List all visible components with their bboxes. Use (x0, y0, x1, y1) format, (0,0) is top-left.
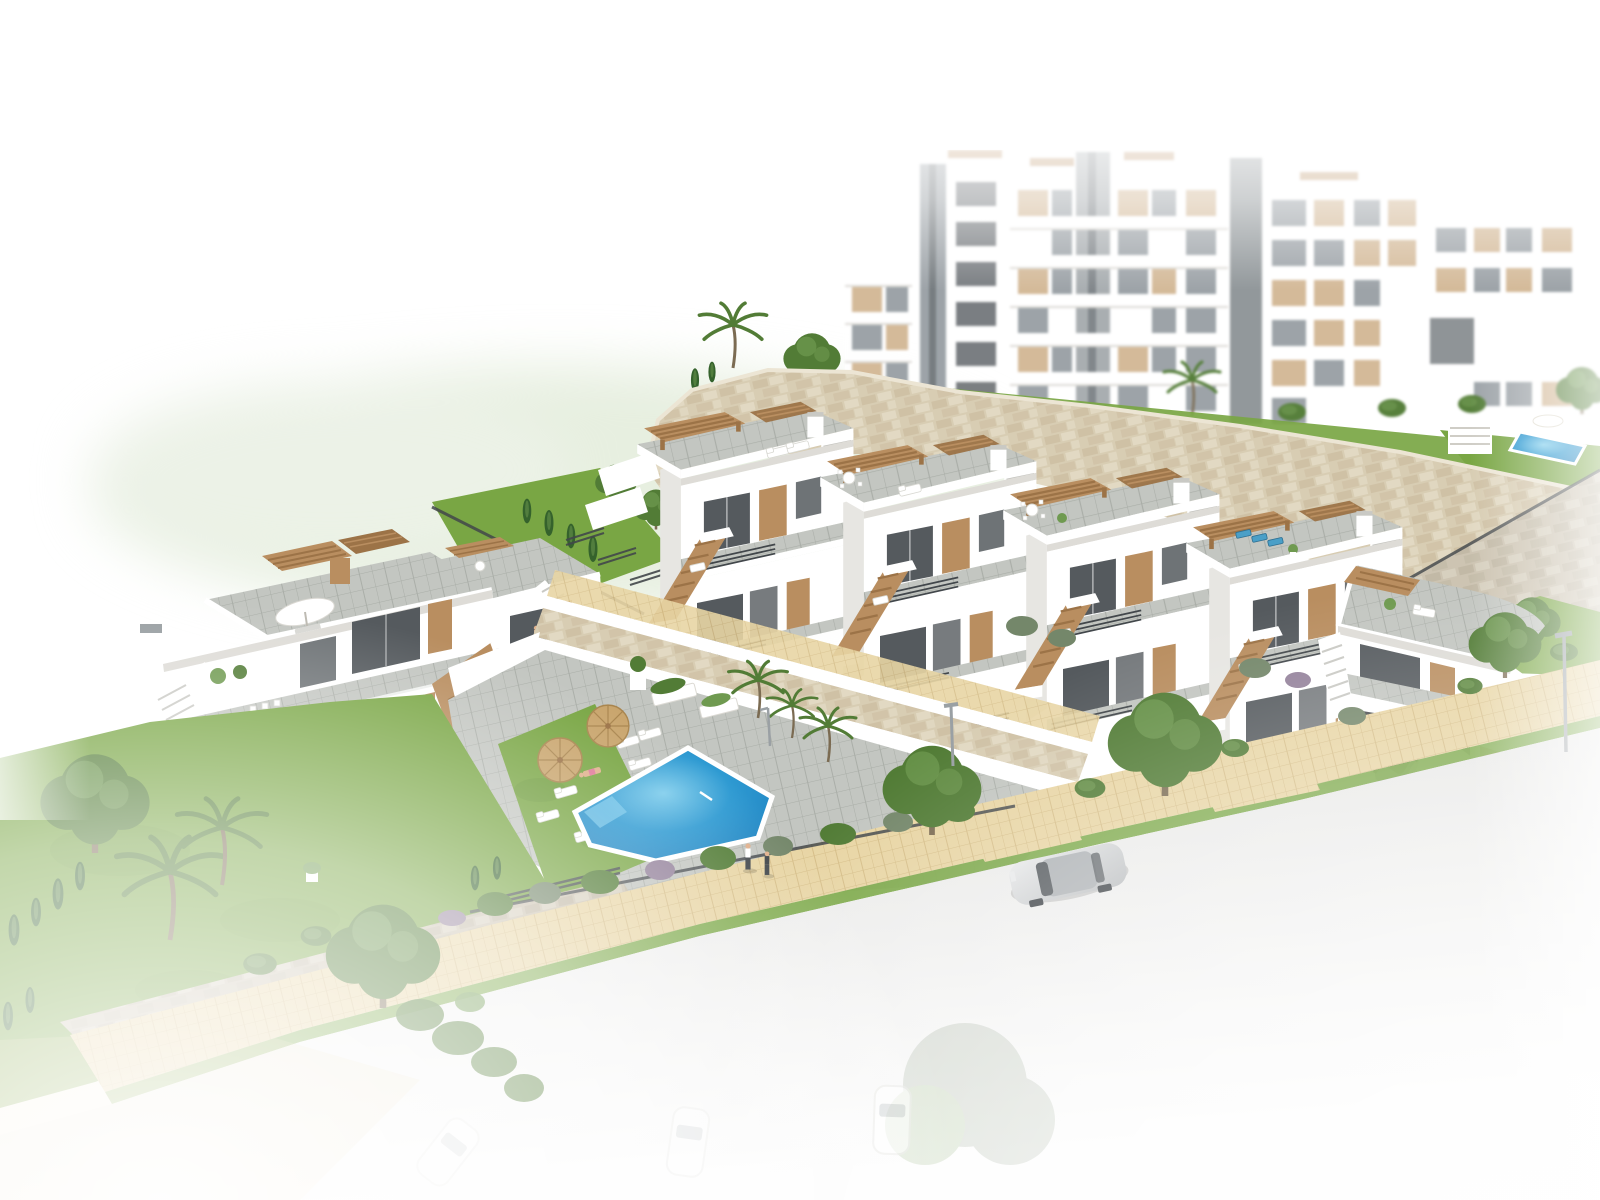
fade-overlays (0, 0, 1600, 1200)
architectural-render: New-build residential development - aeri… (0, 0, 1600, 1200)
scene-canvas: New-build residential development - aeri… (0, 0, 1600, 1200)
